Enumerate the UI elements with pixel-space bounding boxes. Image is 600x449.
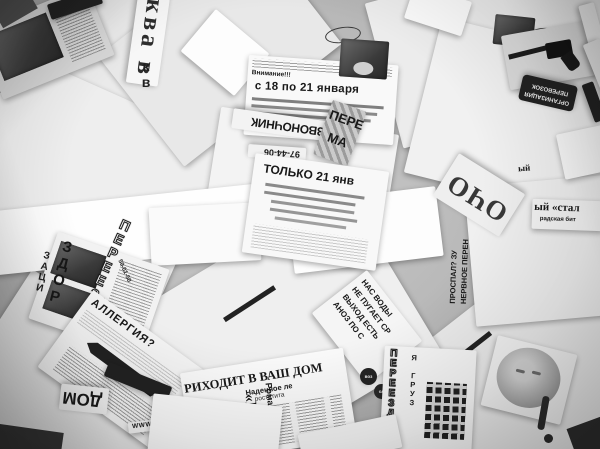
headline-kv: кв bbox=[139, 58, 153, 98]
subhead-text: Я ГРУЗ bbox=[407, 353, 418, 415]
label-text: ПЕРЕ bbox=[328, 108, 366, 132]
newspaper-collage-photo: осква в кв ЗАЦИ ЗДОР ПЕРЕЕЗ 50-01-50 Вни… bbox=[0, 0, 600, 449]
attention-text: Внимание!!! bbox=[251, 70, 290, 79]
label-text: МА bbox=[326, 131, 349, 150]
photo-block bbox=[339, 38, 390, 79]
logo-circle: воз bbox=[360, 368, 377, 385]
tolko-scrap: ТОЛЬКО 21 янв bbox=[242, 153, 390, 271]
subhead-text: радская бит bbox=[540, 216, 576, 223]
vertical-ad-text: ПРОСПАЛ? ЗУ НЕРВНОЕ ПЕРЕН bbox=[449, 240, 475, 305]
mini-headline bbox=[223, 285, 276, 322]
headline-yi: ый bbox=[518, 164, 531, 174]
headline-stal-scrap: ый «стал радская бит bbox=[531, 199, 600, 231]
face-photo bbox=[490, 341, 567, 415]
exclamation-dot bbox=[544, 434, 553, 443]
photo-highlight bbox=[353, 61, 374, 75]
date-banner-text: с 18 по 21 января bbox=[255, 81, 360, 96]
ad-line: ПРОСПАЛ? ЗУ bbox=[449, 240, 459, 304]
headline-text: ДОМ bbox=[62, 389, 103, 410]
headline-dom-scrap: ДОМ bbox=[59, 384, 109, 415]
dark-grid-table bbox=[424, 382, 467, 440]
ad-line: НЕРВНОЕ ПЕРЕН bbox=[459, 240, 469, 304]
headline-text: ый «стал bbox=[534, 202, 580, 215]
